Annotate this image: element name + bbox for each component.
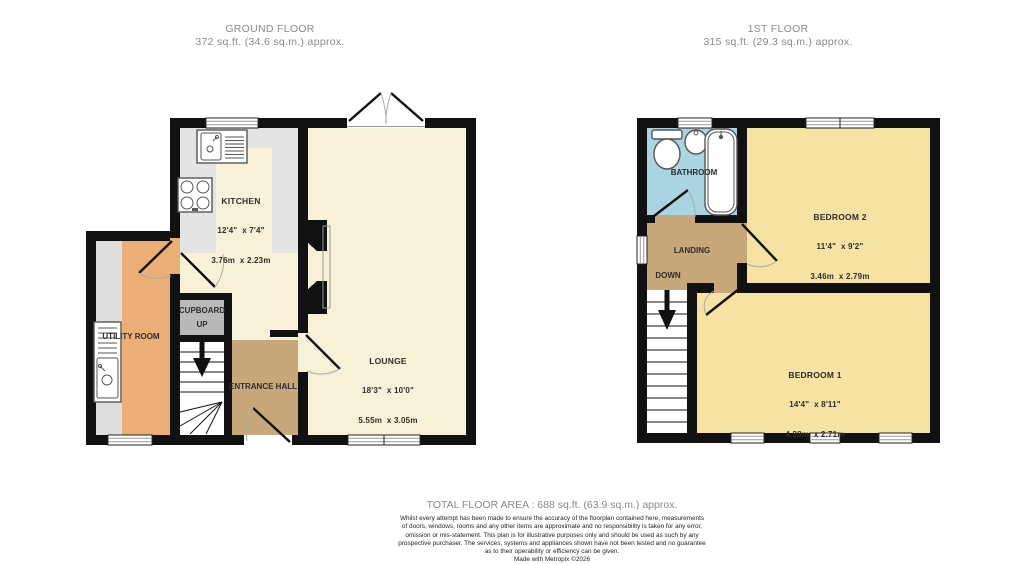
lounge-name: LOUNGE — [358, 356, 417, 366]
kitchen-window-icon — [206, 118, 258, 128]
bathroom-label: BATHROOM — [671, 168, 718, 177]
bathroom-window-icon — [678, 118, 712, 128]
lounge-label: LOUNGE 18'3" x 10'0" 5.55m x 3.05m — [358, 336, 417, 446]
utility-room-label: UTILITY ROOM — [102, 332, 159, 341]
bedroom1-label: BEDROOM 1 14'4" x 8'11" 4.38m x 2.71m — [785, 350, 844, 460]
footer: TOTAL FLOOR AREA : 688 sq.ft. (63.9 sq.m… — [398, 499, 706, 565]
entrance-hall-label: ENTRANCE HALL — [229, 382, 297, 391]
disclaimer-line-1: Whilst every attempt has been made to en… — [398, 515, 706, 523]
lounge-dims-metric: 5.55m x 3.05m — [358, 416, 417, 426]
kitchen-dims-metric: 3.76m x 2.23m — [211, 256, 270, 266]
kitchen-name: KITCHEN — [211, 196, 270, 206]
total-floor-area: TOTAL FLOOR AREA : 688 sq.ft. (63.9 sq.m… — [398, 499, 706, 511]
bedroom2-dims-metric: 3.46m x 2.79m — [810, 272, 869, 282]
ground-floor-title: GROUND FLOOR — [195, 23, 344, 36]
hob-icon — [178, 178, 212, 212]
bedroom1-dims-metric: 4.38m x 2.71m — [785, 430, 844, 440]
lounge-dims-imperial: 18'3" x 10'0" — [358, 386, 417, 396]
kitchen-dims-imperial: 12'4" x 7'4" — [211, 226, 270, 236]
floorplan-canvas — [0, 0, 1024, 565]
disclaimer-line-3: omission or mis-statement. This plan is … — [398, 532, 706, 540]
cupboard-label: CUPBOARD — [179, 306, 225, 315]
bedroom2-label: BEDROOM 2 11'4" x 9'2" 3.46m x 2.79m — [810, 192, 869, 302]
landing-label: LANDING — [674, 246, 710, 255]
made-with-credit: Made with Metropix ©2026 — [398, 556, 706, 564]
bedroom1-dims-imperial: 14'4" x 8'11" — [785, 400, 844, 410]
toilet-icon — [652, 130, 682, 169]
kitchen-label: KITCHEN 12'4" x 7'4" 3.76m x 2.23m — [211, 176, 270, 286]
disclaimer-line-2: of doors, windows, rooms and any other i… — [398, 523, 706, 531]
first-floor-area: 315 sq.ft. (29.3 sq.m.) approx. — [703, 36, 852, 49]
ground-floor-area: 372 sq.ft. (34.6 sq.m.) approx. — [195, 36, 344, 49]
bedroom1-name: BEDROOM 1 — [785, 370, 844, 380]
disclaimer-line-4: prospective purchaser. The services, sys… — [398, 540, 706, 548]
first-floor-header: 1ST FLOOR 315 sq.ft. (29.3 sq.m.) approx… — [703, 23, 852, 49]
down-label: DOWN — [655, 271, 680, 280]
patio-double-doors-icon — [347, 93, 425, 127]
utility-window-icon — [108, 435, 152, 445]
bedroom2-window-icon — [806, 118, 874, 128]
floorplan-page: GROUND FLOOR 372 sq.ft. (34.6 sq.m.) app… — [0, 0, 1024, 565]
bedroom2-name: BEDROOM 2 — [810, 212, 869, 222]
bedroom2-dims-imperial: 11'4" x 9'2" — [810, 242, 869, 252]
basin-icon — [685, 130, 707, 154]
up-label: UP — [196, 320, 207, 329]
ground-floor-header: GROUND FLOOR 372 sq.ft. (34.6 sq.m.) app… — [195, 23, 344, 49]
first-floor-title: 1ST FLOOR — [703, 23, 852, 36]
landing-window-icon — [637, 236, 647, 264]
kitchen-sink-icon — [197, 130, 247, 163]
